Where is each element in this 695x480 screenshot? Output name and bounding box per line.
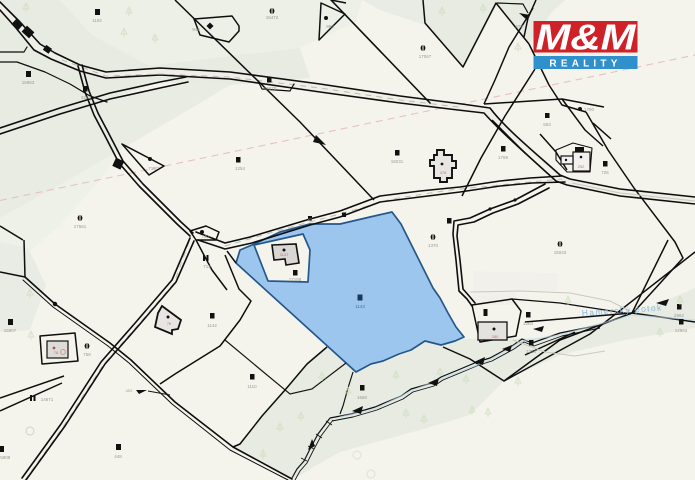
svg-text:1147: 1147 bbox=[280, 252, 289, 257]
svg-text:1110: 1110 bbox=[247, 384, 257, 389]
svg-text:M&M: M&M bbox=[536, 17, 637, 58]
svg-text:1790: 1790 bbox=[584, 107, 595, 112]
svg-text:15043: 15043 bbox=[554, 250, 567, 255]
svg-text:1142: 1142 bbox=[207, 323, 217, 328]
svg-text:16472: 16472 bbox=[266, 15, 279, 20]
svg-text:553: 553 bbox=[543, 122, 551, 127]
svg-text:17561: 17561 bbox=[74, 224, 87, 229]
svg-text:16670: 16670 bbox=[264, 86, 277, 91]
svg-text:15908: 15908 bbox=[0, 455, 11, 460]
svg-text:14671: 14671 bbox=[41, 397, 54, 402]
svg-text:2962: 2962 bbox=[674, 313, 685, 318]
svg-text:76: 76 bbox=[167, 321, 172, 326]
svg-text:713: 713 bbox=[203, 264, 211, 269]
svg-text:3293: 3293 bbox=[81, 95, 92, 100]
svg-text:280: 280 bbox=[492, 334, 499, 339]
svg-text:REALITY: REALITY bbox=[549, 59, 621, 70]
svg-text:758: 758 bbox=[83, 352, 91, 357]
svg-text:12963: 12963 bbox=[675, 328, 688, 333]
svg-text:1192: 1192 bbox=[92, 18, 102, 23]
svg-text:78: 78 bbox=[54, 350, 59, 355]
svg-text:1769: 1769 bbox=[498, 155, 509, 160]
svg-text:1354: 1354 bbox=[526, 349, 537, 354]
svg-text:993: 993 bbox=[326, 24, 334, 29]
svg-text:478: 478 bbox=[515, 24, 523, 29]
svg-text:63: 63 bbox=[308, 218, 312, 222]
svg-text:715: 715 bbox=[148, 166, 156, 171]
svg-text:1264: 1264 bbox=[523, 321, 534, 326]
svg-text:15907: 15907 bbox=[4, 328, 17, 333]
svg-text:18231: 18231 bbox=[391, 159, 404, 164]
svg-text:476: 476 bbox=[440, 170, 447, 175]
svg-text:292: 292 bbox=[578, 164, 585, 169]
svg-text:448: 448 bbox=[114, 454, 122, 459]
svg-text:402: 402 bbox=[126, 388, 133, 393]
svg-text:1143: 1143 bbox=[355, 304, 365, 309]
svg-text:949: 949 bbox=[192, 27, 200, 32]
svg-text:17067: 17067 bbox=[419, 54, 432, 59]
svg-text:17158: 17158 bbox=[289, 277, 302, 282]
svg-text:1370: 1370 bbox=[428, 243, 439, 248]
svg-text:740: 740 bbox=[201, 234, 209, 239]
svg-text:16963: 16963 bbox=[22, 80, 35, 85]
svg-text:1660: 1660 bbox=[357, 395, 368, 400]
svg-text:726: 726 bbox=[601, 170, 609, 175]
svg-text:1254: 1254 bbox=[235, 166, 246, 171]
